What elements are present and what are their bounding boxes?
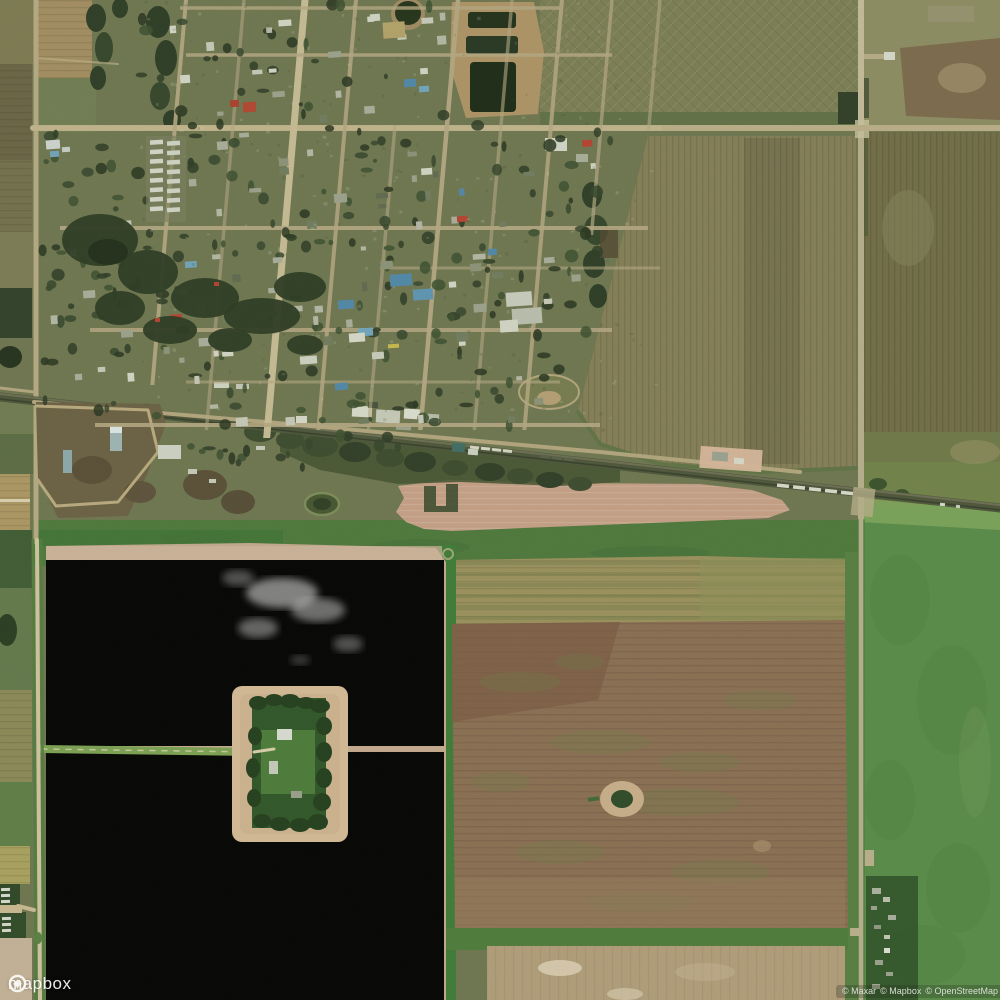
attribution-mapbox-link[interactable]: © Mapbox [880, 986, 921, 996]
mapbox-logo-icon [8, 974, 27, 993]
map-canvas[interactable]: mapbox © Maxar© Mapbox© OpenStreetMap [0, 0, 1000, 1000]
attribution-bar: © Maxar© Mapbox© OpenStreetMap [836, 985, 1000, 998]
map-layers [0, 0, 1000, 1000]
mapbox-logo-link[interactable]: mapbox [8, 974, 71, 994]
attribution-osm-link[interactable]: © OpenStreetMap [925, 986, 998, 996]
attribution-maxar-link[interactable]: © Maxar [842, 986, 876, 996]
satellite-imagery [0, 0, 1000, 1000]
